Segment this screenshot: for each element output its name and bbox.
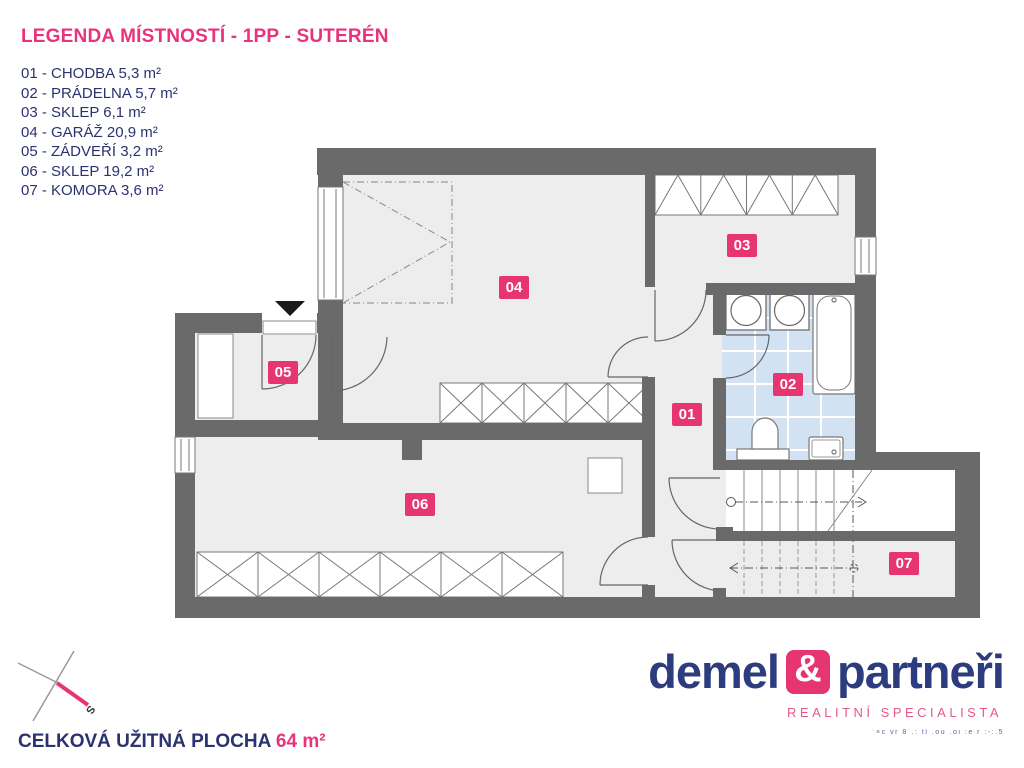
shelving-room03: [655, 175, 838, 215]
logo-subtitle: REALITNÍ SPECIALISTA: [648, 705, 1004, 720]
legend-item: 01 - CHODBA 5,3 m²: [21, 64, 389, 84]
legend-item: 06 - SKLEP 19,2 m²: [21, 162, 389, 182]
legend-item: 03 - SKLEP 6,1 m²: [21, 103, 389, 123]
legend-item: 05 - ZÁDVEŘÍ 3,2 m²: [21, 142, 389, 162]
legend: LEGENDA MÍSTNOSTÍ - 1PP - SUTERÉN 01 - C…: [21, 26, 389, 201]
chimney-block: [588, 458, 622, 493]
room-badge-03: 03: [727, 234, 757, 257]
room-badge-05: 05: [268, 361, 298, 384]
garage-door-opening: [318, 187, 343, 300]
logo-name-left: demel: [648, 644, 779, 699]
room-badge-07: 07: [889, 552, 919, 575]
logo-fine-print: ´×c vr 8´.: tl .ou .oi :e r :-:.5: [648, 729, 1004, 736]
logo-name-right: partneři: [837, 644, 1004, 699]
room-badge-01: 01: [672, 403, 702, 426]
room-badge-04: 04: [499, 276, 529, 299]
window-left: [175, 437, 195, 473]
room-badge-06: 06: [405, 493, 435, 516]
legend-item: 04 - GARÁŽ 20,9 m²: [21, 123, 389, 143]
room-badge-02: 02: [773, 373, 803, 396]
shelving-room06: [197, 552, 563, 597]
window-right: [855, 237, 876, 275]
sink-icon: [809, 437, 843, 460]
legend-title: LEGENDA MÍSTNOSTÍ - 1PP - SUTERÉN: [21, 26, 389, 48]
total-area: CELKOVÁ UŽITNÁ PLOCHA 64 m²: [18, 731, 326, 753]
logo-ampersand-icon: &: [786, 650, 830, 694]
total-area-value: 64 m²: [276, 731, 326, 752]
total-area-label: CELKOVÁ UŽITNÁ PLOCHA: [18, 731, 271, 752]
legend-item: 07 - KOMORA 3,6 m²: [21, 181, 389, 201]
shelving-garage: [440, 383, 650, 423]
north-arrow: S: [18, 651, 97, 721]
entrance: [262, 301, 317, 335]
closet-room05: [198, 334, 233, 418]
brand-logo: demel & partneři REALITNÍ SPECIALISTA ´×…: [648, 644, 1004, 736]
bathtub-icon: [813, 292, 855, 394]
page: { "legend": { "title": "LEGENDA MÍSTNOST…: [0, 0, 1024, 768]
legend-item: 02 - PRÁDELNA 5,7 m²: [21, 84, 389, 104]
